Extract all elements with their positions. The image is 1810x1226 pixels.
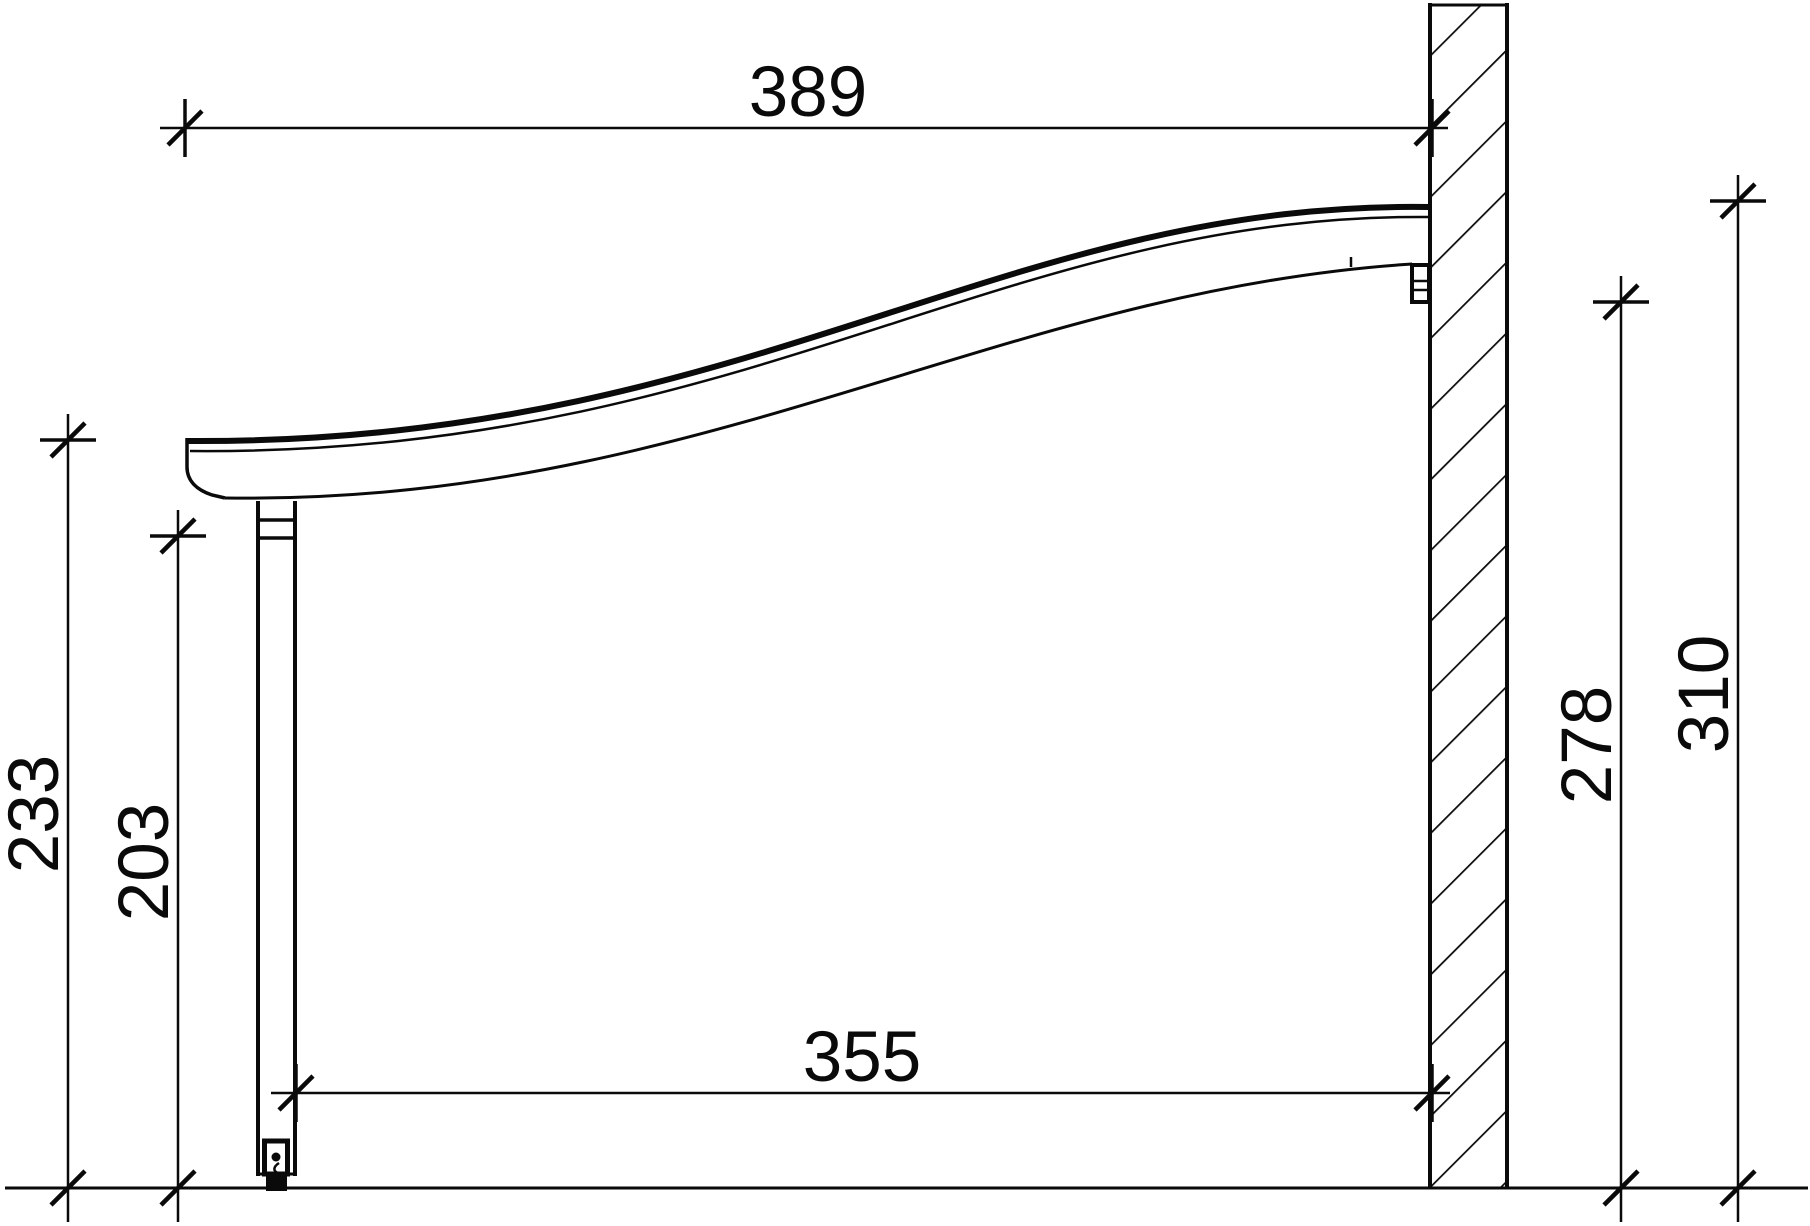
dimension-front-clear-height: 203 [105,510,206,1222]
dimension-roof-width-top: 389 [160,53,1449,157]
roof-panel-line [190,217,1430,451]
dimension-front-total-height: 233 [0,414,96,1222]
dimension-wall-upper-height: 310 [1665,175,1766,1222]
carport-side-elevation: 389 355 233 [0,0,1810,1226]
dimension-label-355: 355 [803,1018,921,1097]
wall-hatching [1432,4,1506,1188]
dimension-label-310: 310 [1665,635,1744,753]
anchor-base-plate [266,1176,287,1191]
front-post [258,501,295,1176]
dimension-wall-lower-height: 278 [1548,276,1649,1222]
dimension-span-width-bottom: 355 [271,1018,1450,1122]
post-anchor [265,1141,288,1191]
dimension-label-389: 389 [749,53,867,132]
anchor-bolt [272,1153,281,1162]
structure-outline [5,3,1808,1191]
wave-roof [187,207,1430,498]
roof-front-fascia [187,438,225,498]
wall-bracket [1412,265,1429,302]
roof-bottom-edge [225,264,1412,498]
roof-top-edge [187,207,1430,441]
wall-section [1430,3,1507,1188]
dimension-label-233: 233 [0,755,74,873]
dimension-label-278: 278 [1548,686,1627,804]
technical-drawing: 389 355 233 [0,0,1810,1226]
dimension-label-203: 203 [105,803,184,921]
wall-bracket-body [1412,265,1429,302]
